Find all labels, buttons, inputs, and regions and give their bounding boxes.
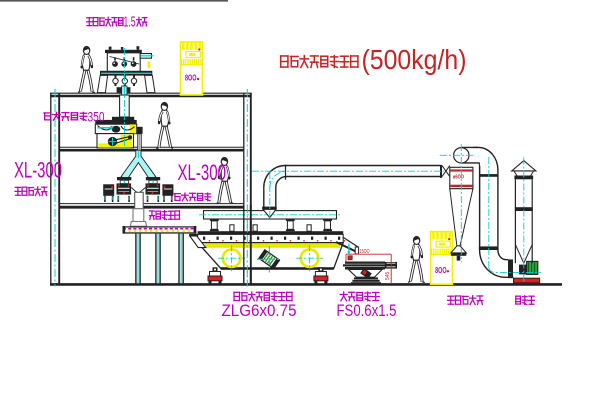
svg-text:8OO: 8OO [185,74,197,83]
svg-text:8OO: 8OO [435,266,447,275]
svg-text:ø6OO: ø6OO [453,175,464,181]
svg-text:XL-300: XL-300 [178,160,227,185]
svg-text:545: 545 [385,271,391,280]
svg-text:350: 350 [88,110,105,125]
svg-text:15OO: 15OO [360,249,370,255]
svg-text:ZLG6x0.75: ZLG6x0.75 [222,301,297,320]
svg-text:FS0.6x1.5: FS0.6x1.5 [337,301,397,320]
svg-text:1.5: 1.5 [124,14,136,31]
svg-text:(500kg/h): (500kg/h) [362,44,467,75]
svg-text:XL-300: XL-300 [14,158,62,183]
